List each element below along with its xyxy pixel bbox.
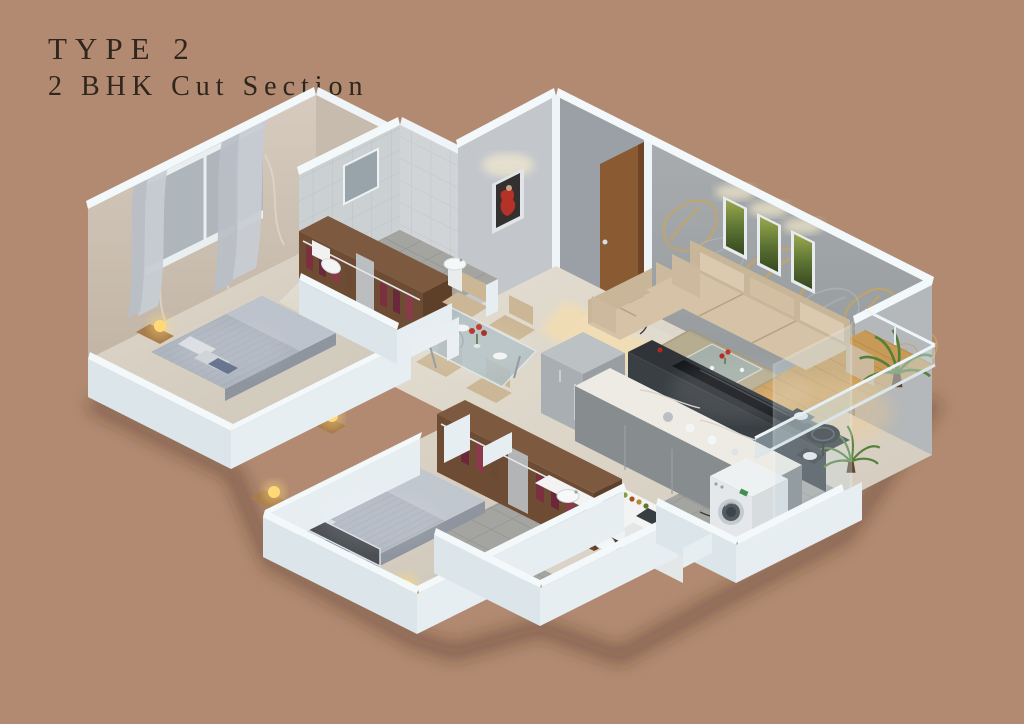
- page: TYPE 2 2 BHK Cut Section: [0, 0, 1024, 724]
- floor-plan-render: [0, 0, 1024, 724]
- door-handle: [603, 240, 608, 245]
